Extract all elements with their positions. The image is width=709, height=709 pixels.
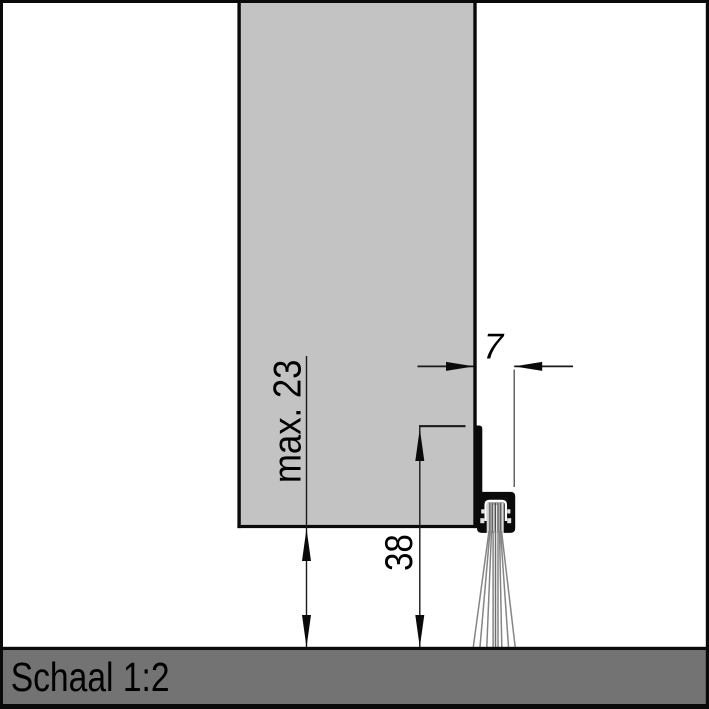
svg-text:max. 23: max. 23 [266,360,309,483]
svg-text:Schaal 1:2: Schaal 1:2 [11,654,170,700]
svg-text:38: 38 [376,534,420,571]
